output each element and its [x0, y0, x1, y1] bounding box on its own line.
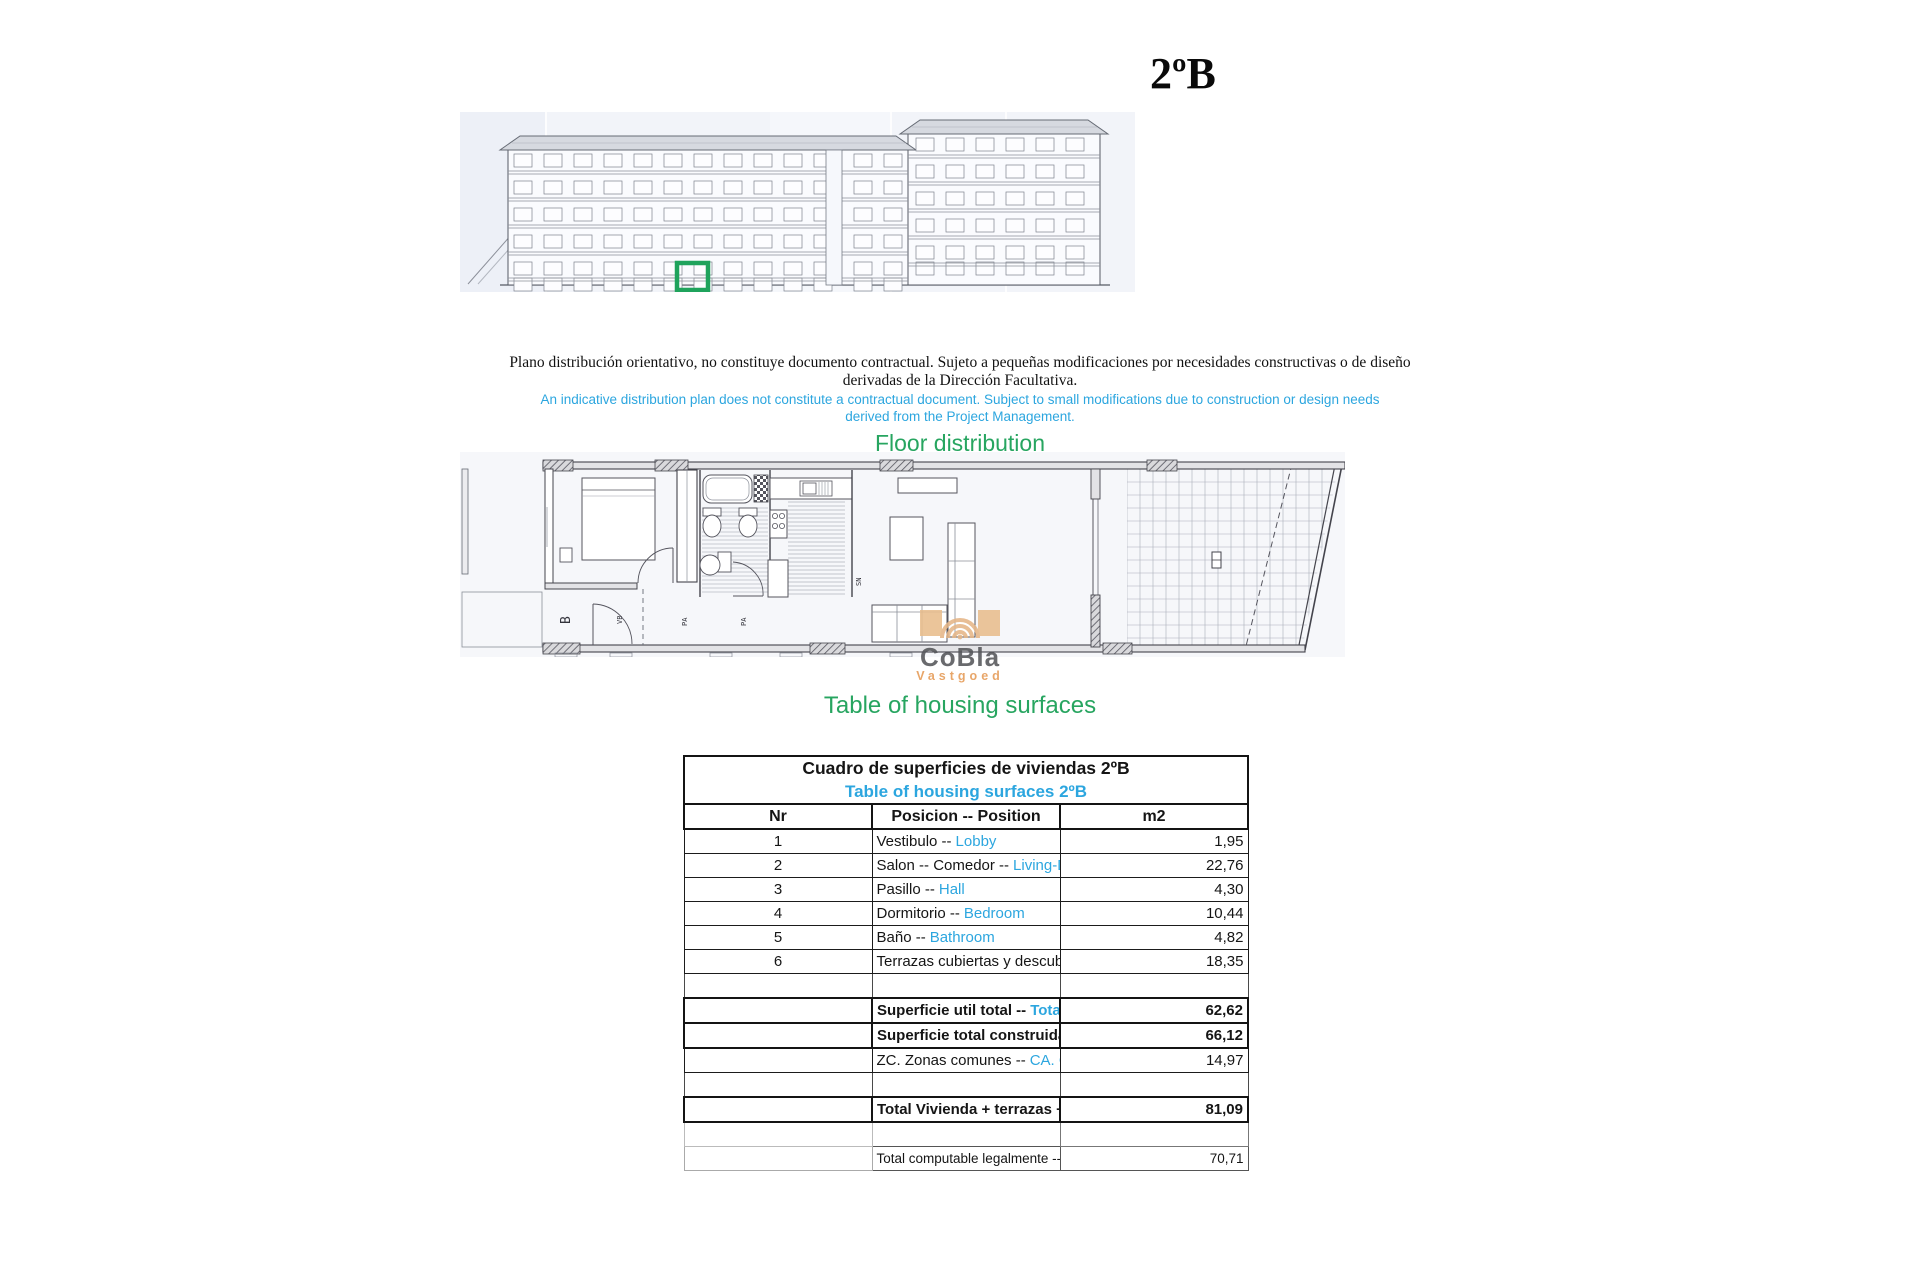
table-row: 4 Dormitorio --Bedroom 10,44 — [684, 902, 1248, 926]
plan-label-pa1: PA — [681, 617, 689, 626]
row-nr: 5 — [684, 926, 872, 950]
summary-en: CA. Common areas — [1030, 1052, 1060, 1069]
plan-label-vb: VB — [616, 616, 624, 624]
header-m2: m2 — [1060, 804, 1248, 829]
summary-row: Superficie total construida --Vivienda T… — [684, 1023, 1248, 1048]
row-m2: 1,95 — [1060, 829, 1248, 854]
legal-row: Total computable legalmente --Total lega… — [684, 1147, 1248, 1171]
header-position: Posicion -- Position — [872, 804, 1060, 829]
floor-plan-drawing: B VB PA PA SN — [460, 452, 1345, 657]
row-es: Terrazas cubiertas y descubiertas -- — [877, 953, 1061, 970]
summary-m2: 62,62 — [1060, 998, 1248, 1023]
disclaimer-es-line2: derivadas de la Dirección Facultativa. — [460, 372, 1460, 390]
plan-label-pa2: PA — [740, 617, 748, 626]
surfaces-table-wrap: Cuadro de superficies de viviendas 2ºB T… — [683, 755, 1249, 1171]
watermark: CoBla Vastgoed — [914, 600, 1006, 684]
total-es: Total Vivienda + terrazas + ZC -- — [877, 1101, 1060, 1118]
summary-row: ZC. Zonas comunes --CA. Common areas 14,… — [684, 1048, 1248, 1073]
table-row: 5 Baño --Bathroom 4,82 — [684, 926, 1248, 950]
disclaimer-block: Plano distribución orientativo, no const… — [460, 354, 1460, 424]
row-en: Hall — [939, 881, 965, 898]
row-nr: 2 — [684, 854, 872, 878]
row-en: Lobby — [956, 833, 997, 850]
row-es: Dormitorio -- — [877, 905, 960, 922]
summary-row: Superficie util total --Total usable are… — [684, 998, 1248, 1023]
header-nr: Nr — [684, 804, 872, 829]
table-row: 6 Terrazas cubiertas y descubiertas --Co… — [684, 950, 1248, 974]
table-title-en-row: Table of housing surfaces 2ºB — [684, 780, 1248, 804]
row-m2: 18,35 — [1060, 950, 1248, 974]
legal-es: Total computable legalmente -- — [877, 1151, 1061, 1166]
row-es: Pasillo -- — [877, 881, 935, 898]
summary-es: ZC. Zonas comunes -- — [877, 1052, 1026, 1069]
summary-es: Superficie total construida -- — [877, 1027, 1060, 1044]
row-nr: 3 — [684, 878, 872, 902]
legal-m2: 70,71 — [1060, 1147, 1248, 1171]
total-m2: 81,09 — [1060, 1097, 1248, 1122]
gap-row — [684, 1122, 1248, 1147]
row-en: Bathroom — [930, 929, 995, 946]
row-m2: 10,44 — [1060, 902, 1248, 926]
row-m2: 4,82 — [1060, 926, 1248, 950]
total-row: Total Vivienda + terrazas + ZC --Total H… — [684, 1097, 1248, 1122]
summary-m2: 66,12 — [1060, 1023, 1248, 1048]
summary-en: Total usable area — [1030, 1002, 1060, 1019]
row-en: Bedroom — [964, 905, 1025, 922]
row-nr: 1 — [684, 829, 872, 854]
row-nr: 4 — [684, 902, 872, 926]
document-page: 2ºB — [0, 0, 1920, 1280]
blank-row — [684, 974, 1248, 999]
disclaimer-en-line2: derived from the Project Management. — [460, 409, 1460, 424]
summary-m2: 14,97 — [1060, 1048, 1248, 1073]
table-header-row: Nr Posicion -- Position m2 — [684, 804, 1248, 829]
watermark-logo-icon — [917, 600, 1003, 640]
disclaimer-en-line1: An indicative distribution plan does not… — [460, 392, 1460, 407]
table-title-en: Table of housing surfaces 2ºB — [845, 782, 1087, 801]
table-row: 1 Vestibulo --Lobby 1,95 — [684, 829, 1248, 854]
housing-surfaces-heading: Table of housing surfaces — [460, 692, 1460, 720]
watermark-brand-text: CoBla — [914, 645, 1006, 669]
disclaimer-es-line1: Plano distribución orientativo, no const… — [460, 354, 1460, 372]
plan-label-b: B — [559, 616, 574, 624]
row-es: Vestibulo -- — [877, 833, 952, 850]
row-es: Salon -- Comedor -- — [877, 857, 1010, 874]
page-title: 2ºB — [1150, 52, 1216, 96]
row-en: Living-Dining room — [1013, 857, 1060, 874]
row-nr: 6 — [684, 950, 872, 974]
row-m2: 22,76 — [1060, 854, 1248, 878]
table-row: 3 Pasillo --Hall 4,30 — [684, 878, 1248, 902]
row-m2: 4,30 — [1060, 878, 1248, 902]
table-title-es-row: Cuadro de superficies de viviendas 2ºB — [684, 756, 1248, 780]
building-elevation-drawing — [460, 112, 1135, 292]
surfaces-table: Cuadro de superficies de viviendas 2ºB T… — [683, 755, 1249, 1171]
plan-label-sn: SN — [855, 578, 863, 586]
summary-es: Superficie util total -- — [877, 1002, 1026, 1019]
table-title-es: Cuadro de superficies de viviendas 2ºB — [684, 756, 1248, 780]
watermark-sub-text: Vastgoed — [914, 669, 1006, 684]
blank-row — [684, 1073, 1248, 1098]
table-row: 2 Salon -- Comedor --Living-Dining room … — [684, 854, 1248, 878]
row-es: Baño -- — [877, 929, 926, 946]
